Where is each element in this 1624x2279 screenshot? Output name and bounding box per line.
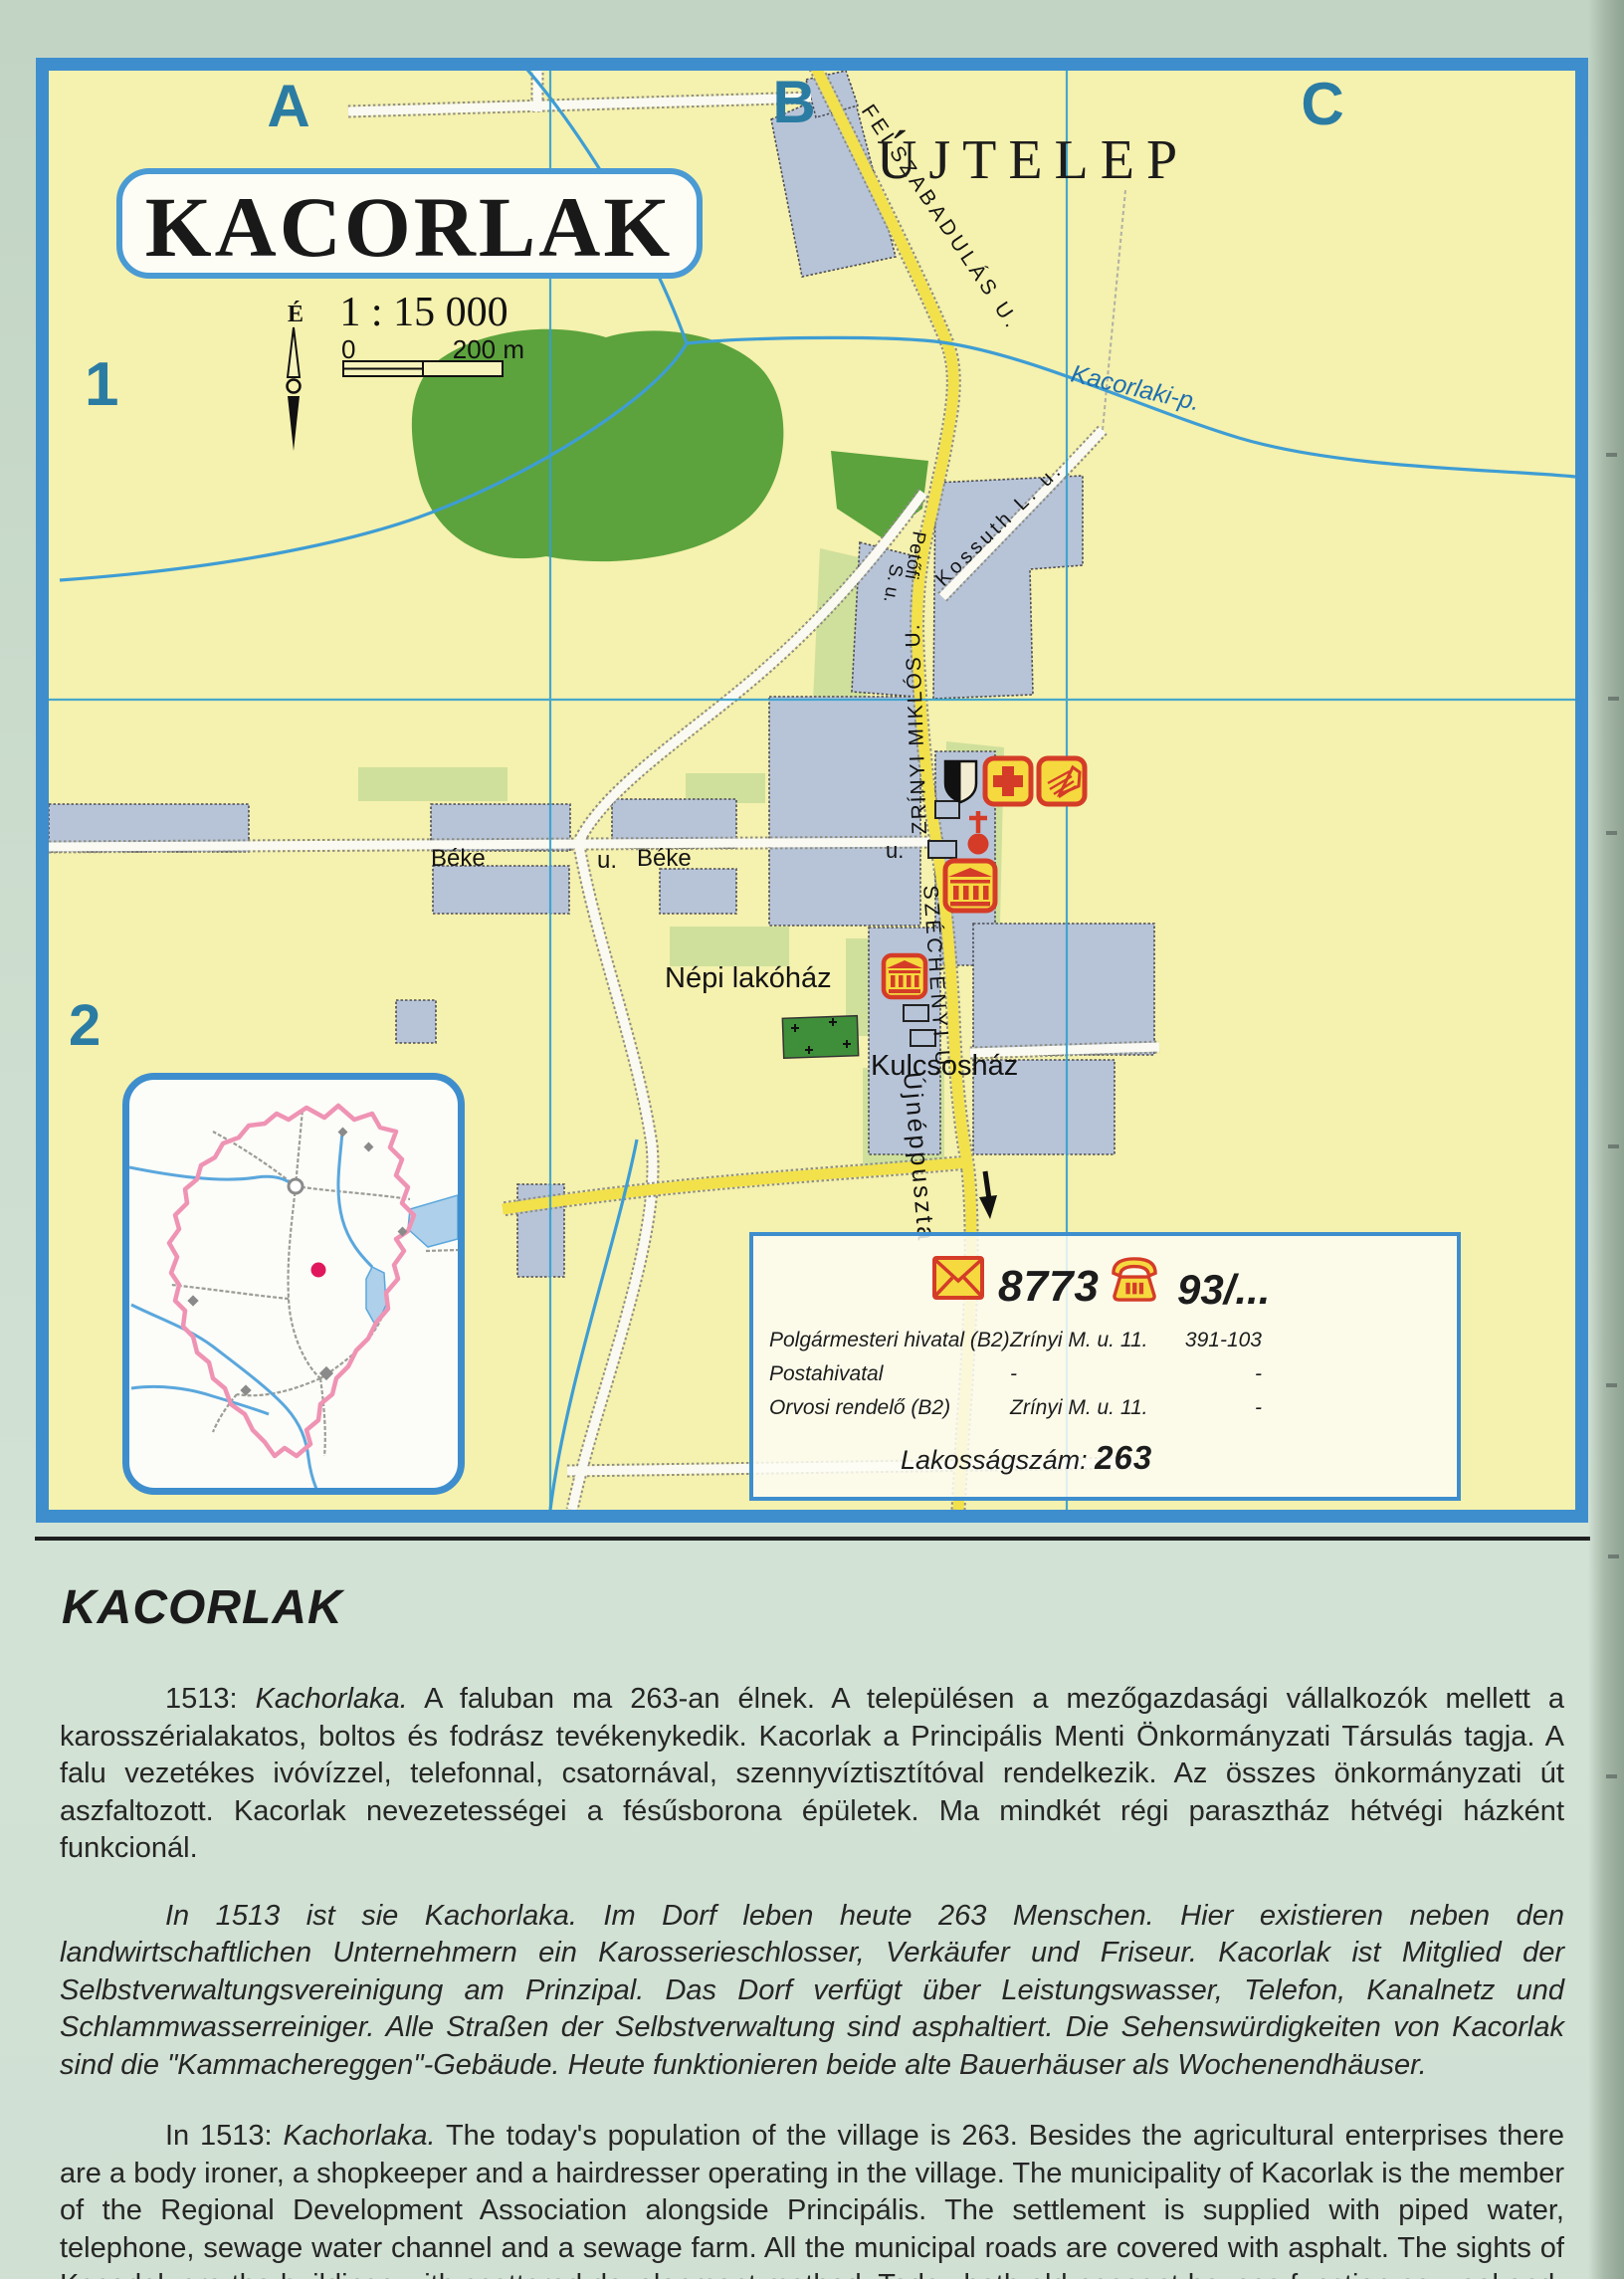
info-row: Orvosi rendelő (B2) Zrínyi M. u. 11. -	[769, 1391, 1441, 1425]
article-section: KACORLAK 1513: Kachorlaka. A faluban ma …	[60, 1553, 1564, 2279]
phone-icon	[1108, 1256, 1161, 1307]
map-title-box: KACORLAK	[119, 171, 700, 276]
street-label-beke-1: Béke	[431, 845, 486, 872]
population-value: 263	[1095, 1439, 1152, 1476]
scale-text: 1 : 15 000	[339, 290, 507, 335]
scan-artifact	[1606, 831, 1617, 835]
street-label-beke-2: u.	[597, 847, 617, 874]
street-label-u-extra: u.	[886, 838, 904, 863]
info-row-phone: 391-103	[1167, 1324, 1262, 1357]
poi-label-nepi-lakohaz: Népi lakóház	[665, 962, 832, 994]
north-arrow-icon: É	[288, 302, 304, 451]
scalebar	[343, 361, 503, 376]
district-label: ÚJTELEP	[877, 128, 1189, 191]
inset-rivers	[129, 1132, 372, 1488]
coat-of-arms-icon	[945, 761, 976, 802]
section-divider	[35, 1537, 1590, 1541]
info-row-name: Polgármesteri hivatal (B2)	[769, 1324, 1018, 1357]
scan-artifact	[1608, 1554, 1619, 1558]
inset-roads	[171, 1110, 458, 1456]
envelope-icon	[932, 1256, 984, 1305]
folk-house-museum-icon	[884, 955, 925, 997]
grid-col-b: B	[772, 71, 815, 135]
county-inset-map	[122, 1073, 465, 1495]
svg-text:É: É	[288, 302, 304, 327]
page-edge-shading	[1588, 0, 1624, 2279]
county-inset-canvas	[129, 1080, 458, 1488]
scan-artifact	[1606, 1774, 1617, 1778]
grid-row-2: 2	[69, 993, 101, 1058]
info-row: Polgármesteri hivatal (B2) Zrínyi M. u. …	[769, 1324, 1441, 1357]
scalebar-end: 200 m	[453, 334, 524, 364]
info-row: Postahivatal - -	[769, 1357, 1441, 1391]
street-label-beke-3: Béke	[637, 845, 692, 872]
exit-arrow-icon	[979, 1171, 997, 1219]
info-row-name: Postahivatal	[769, 1357, 1018, 1391]
paragraph-english: In 1513: Kachorlaka. The today's populat…	[60, 2118, 1564, 2279]
map-title: KACORLAK	[145, 179, 673, 275]
historic-name: Kachorlaka.	[283, 2120, 435, 2152]
info-rows: Polgármesteri hivatal (B2) Zrínyi M. u. …	[769, 1324, 1441, 1425]
postal-code: 8773	[998, 1262, 1100, 1312]
medical-cross-icon	[985, 758, 1031, 804]
grid-row-1: 1	[85, 350, 118, 419]
paragraph-german: In 1513 ist sie Kachorlaka. Im Dorf lebe…	[60, 1898, 1564, 2085]
location-dot	[311, 1263, 326, 1278]
population-label: Lakosságszám:	[901, 1445, 1088, 1475]
stream-label: Kacorlaki-p.	[1069, 360, 1203, 417]
scan-artifact	[1608, 697, 1619, 701]
paragraph-hungarian: 1513: Kachorlaka. A faluban ma 263-an él…	[60, 1681, 1564, 1868]
poi-label-kulcsoshaz: Kulcsosház	[871, 1050, 1018, 1082]
info-row-address: -	[1010, 1357, 1179, 1391]
grid-col-a: A	[267, 73, 309, 139]
population-line: Lakosságszám: 263	[901, 1439, 1152, 1477]
atlas-page: FELSZABADULÁS U. Kossuth L. u. Petőfi S.…	[0, 0, 1624, 2279]
info-row-phone: -	[1167, 1357, 1262, 1391]
cemetery	[782, 1016, 858, 1059]
scan-artifact	[1606, 453, 1617, 457]
article-heading: KACORLAK	[62, 1580, 1564, 1635]
info-row-address: Zrínyi M. u. 11.	[1010, 1391, 1179, 1425]
scan-artifact	[1608, 1144, 1619, 1148]
scan-artifact	[1606, 1383, 1617, 1387]
info-row-address: Zrínyi M. u. 11.	[1010, 1324, 1179, 1357]
info-row-phone: -	[1167, 1391, 1262, 1425]
historic-name: Kachorlaka.	[256, 1683, 408, 1715]
info-row-name: Orvosi rendelő (B2)	[769, 1391, 1018, 1425]
grid-col-c: C	[1301, 71, 1343, 137]
village-info-box: 8773 93/... Polgármesteri hivatal (B2) Z…	[749, 1232, 1461, 1501]
museum-icon	[945, 861, 995, 911]
scalebar-start: 0	[341, 334, 355, 364]
phone-area-code: 93/...	[1177, 1266, 1270, 1314]
comb-harrow-monument-icon	[1039, 758, 1085, 804]
